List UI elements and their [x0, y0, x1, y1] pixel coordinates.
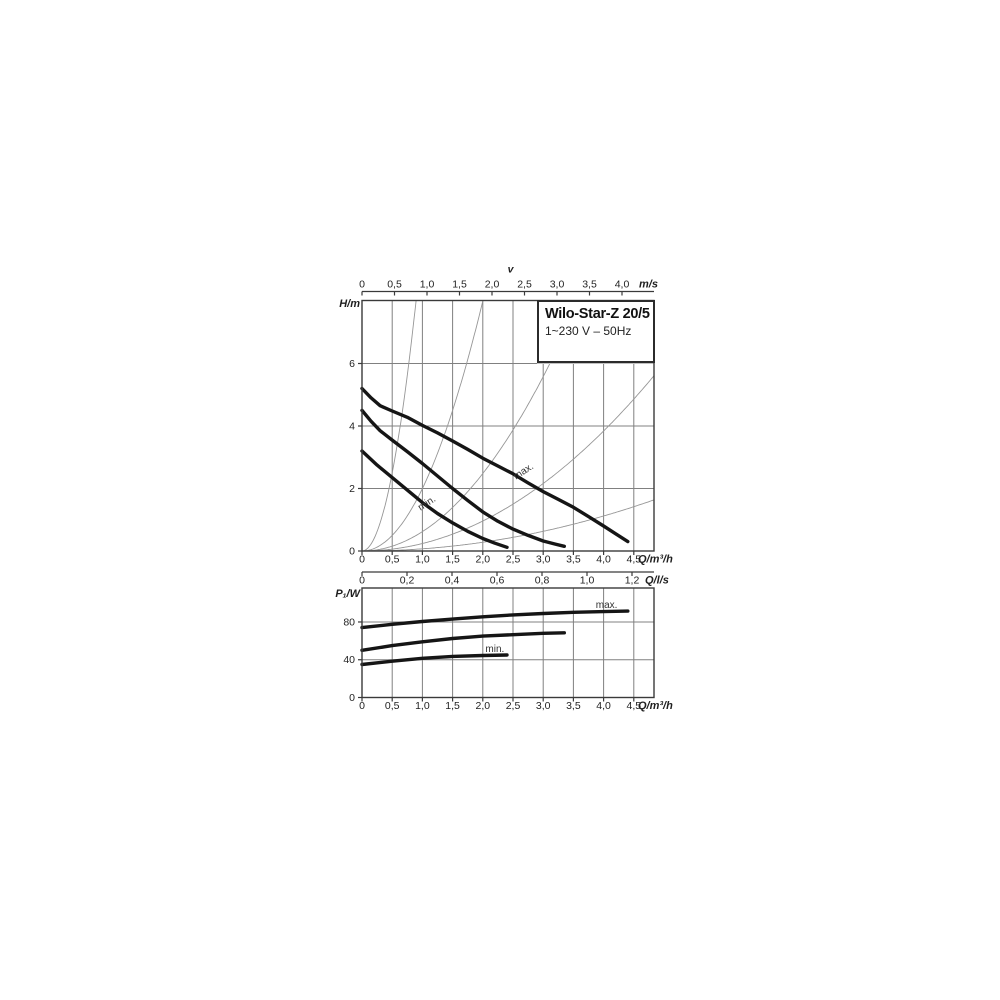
x-tick-label: 1,0 — [415, 700, 430, 712]
v-tick-label: 2,0 — [485, 279, 500, 291]
ls-tick-label: 1,0 — [580, 575, 595, 587]
x-tick-label: 1,0 — [415, 554, 430, 566]
x-tick-label: 3,5 — [566, 554, 581, 566]
x-tick-label: 2,5 — [506, 554, 521, 566]
x-tick-label: 4,0 — [596, 700, 611, 712]
ls-tick-label: 0 — [359, 575, 365, 587]
pump-curve-figure: max.min.0246H/m00,51,01,52,02,53,03,54,0… — [0, 0, 1000, 1000]
x-axis-title-flow-lower: Q/m³/h — [638, 700, 673, 712]
x-axis-title-flow: Q/m³/h — [638, 554, 673, 566]
ls-tick-label: 0,8 — [535, 575, 550, 587]
y-tick-label: 0 — [349, 546, 355, 558]
x-tick-label: 0 — [359, 700, 365, 712]
v-tick-label: 0 — [359, 279, 365, 291]
y-axis-title-head: H/m — [339, 298, 360, 310]
v-tick-label: 2,5 — [517, 279, 532, 291]
x-tick-label: 0,5 — [385, 700, 400, 712]
x-tick-label: 0 — [359, 554, 365, 566]
ls-tick-label: 0,6 — [490, 575, 505, 587]
v-tick-label: 3,0 — [550, 279, 565, 291]
y-tick-label: 4 — [349, 421, 355, 433]
guide-curve — [362, 251, 421, 551]
ls-tick-label: 0,4 — [445, 575, 460, 587]
v-tick-label: 1,5 — [452, 279, 467, 291]
y-axis-title-power: P₁/W — [335, 588, 361, 600]
p-tick-label: 0 — [349, 692, 355, 704]
x-tick-label: 2,0 — [475, 554, 490, 566]
y-tick-label: 2 — [349, 483, 355, 495]
guide-curve — [362, 375, 654, 551]
x-tick-label: 1,5 — [445, 554, 460, 566]
v-tick-label: 4,0 — [615, 279, 630, 291]
v-axis-unit: m/s — [639, 279, 658, 291]
ls-tick-label: 1,2 — [625, 575, 640, 587]
x-tick-label: 3,0 — [536, 554, 551, 566]
p-tick-label: 40 — [343, 654, 355, 666]
power-label-min: min. — [485, 644, 504, 655]
x-tick-label: 0,5 — [385, 554, 400, 566]
x-tick-label: 2,0 — [475, 700, 490, 712]
voltage-frequency-label: 1~230 V – 50Hz — [545, 324, 653, 339]
p-tick-label: 80 — [343, 616, 355, 628]
v-tick-label: 3,5 — [582, 279, 597, 291]
chart-title-box: Wilo-Star-Z 20/5 1~230 V – 50Hz — [537, 300, 655, 363]
x-tick-label: 4,0 — [596, 554, 611, 566]
ls-tick-label: 0,2 — [400, 575, 415, 587]
guide-curve-group — [362, 251, 654, 551]
x-tick-label: 3,0 — [536, 700, 551, 712]
power-curve-max — [362, 611, 628, 628]
x-tick-label: 3,5 — [566, 700, 581, 712]
power-label-max: max. — [596, 600, 618, 611]
v-tick-label: 1,0 — [420, 279, 435, 291]
y-tick-label: 6 — [349, 358, 355, 370]
x-tick-label: 2,5 — [506, 700, 521, 712]
page: max.min.0246H/m00,51,01,52,02,53,03,54,0… — [0, 0, 1000, 1000]
v-axis-title: v — [508, 264, 515, 276]
ls-axis-title: Q/l/s — [645, 575, 669, 587]
x-tick-label: 1,5 — [445, 700, 460, 712]
v-tick-label: 0,5 — [387, 279, 402, 291]
pump-model-title: Wilo-Star-Z 20/5 — [545, 305, 653, 324]
